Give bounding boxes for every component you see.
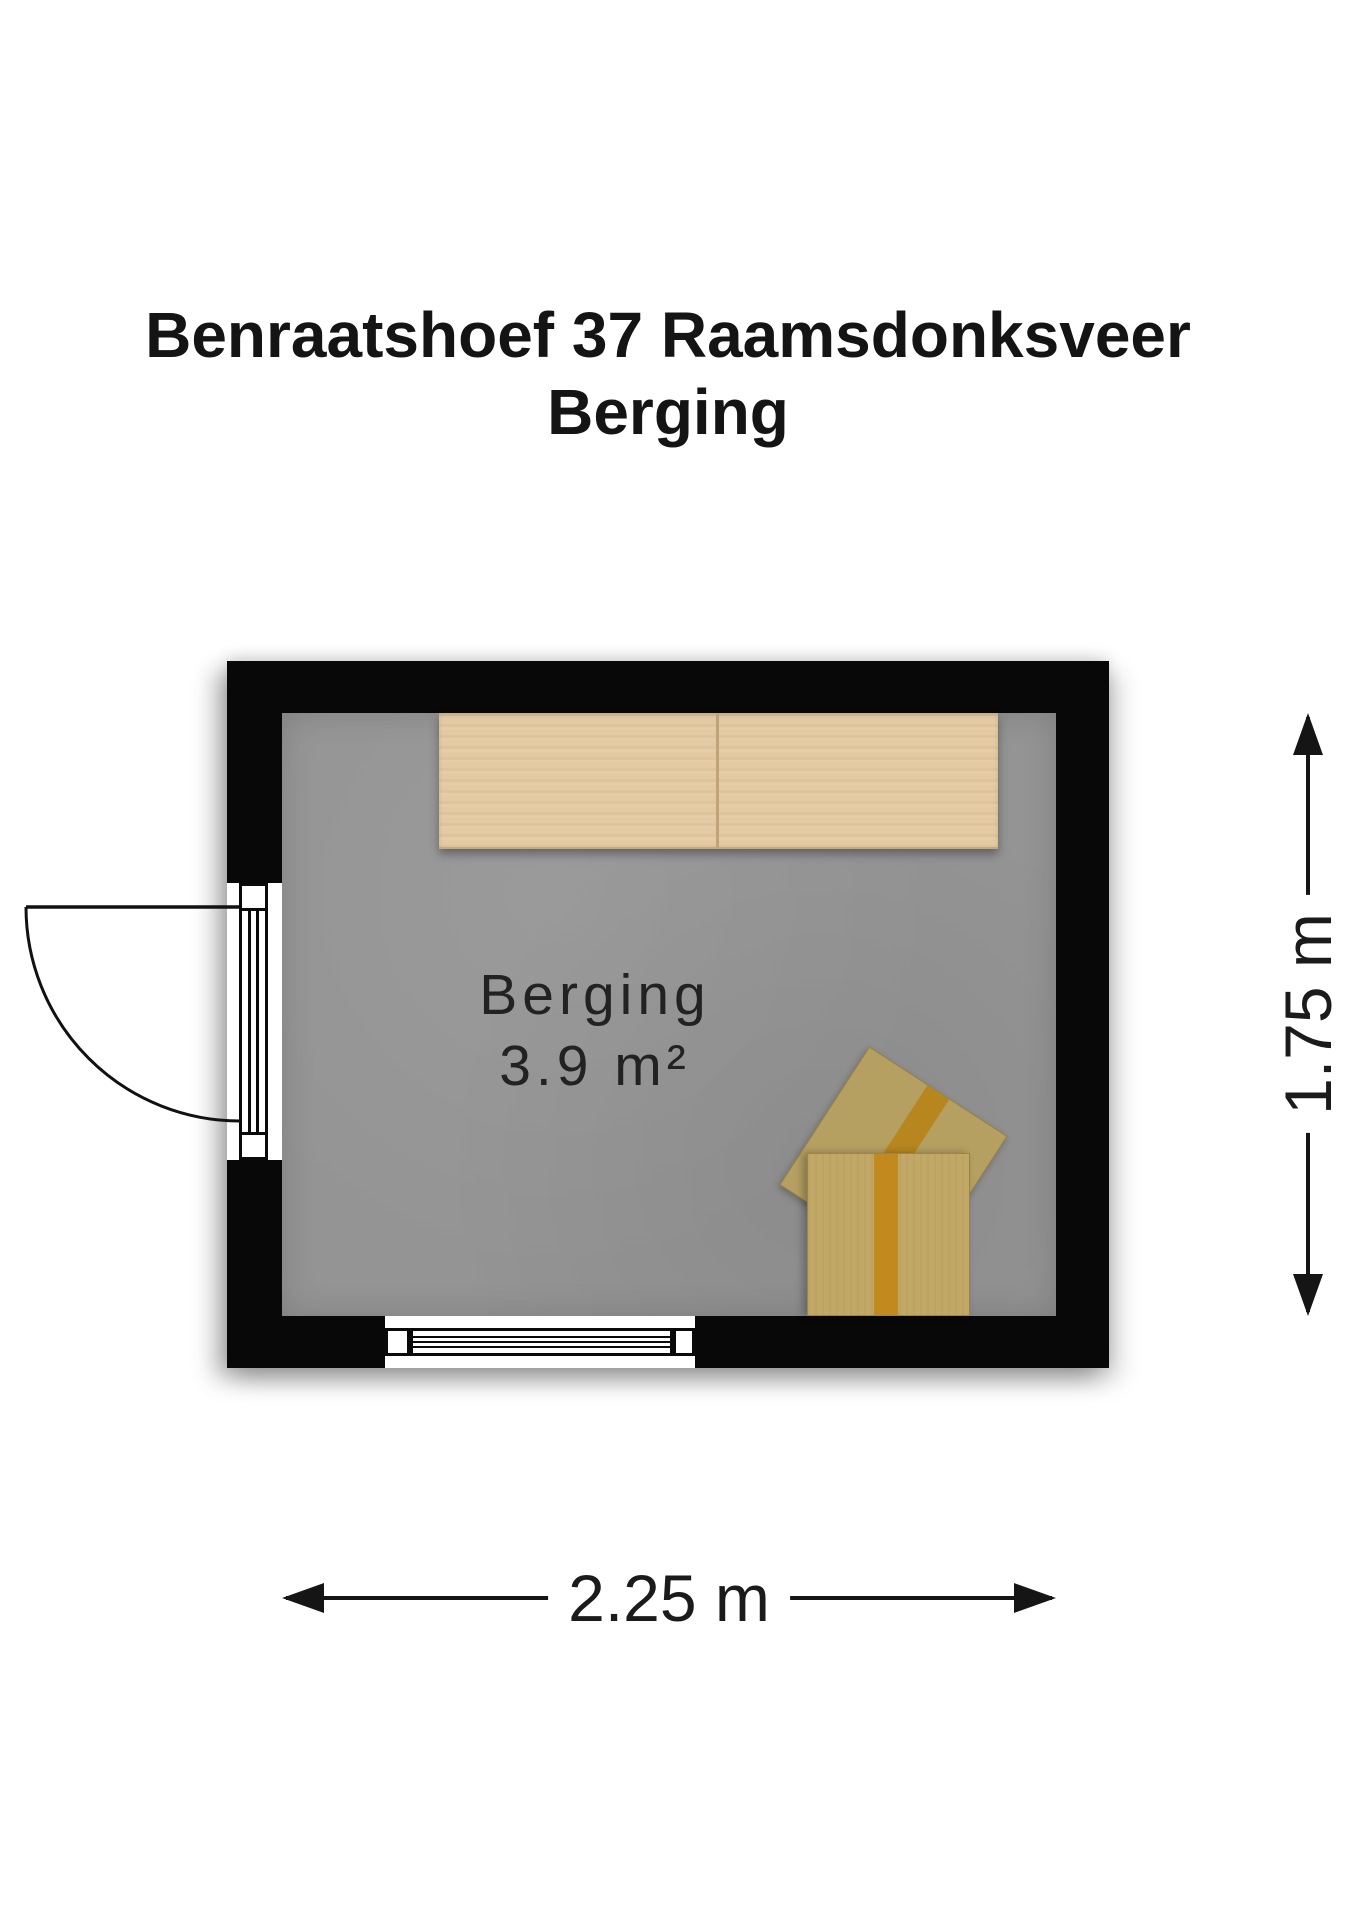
door-frame-line	[256, 911, 259, 1132]
arrow-down-icon	[1293, 1274, 1323, 1316]
arrow-left-icon	[282, 1583, 324, 1613]
arrow-right-icon	[1014, 1583, 1056, 1613]
cardboard-box-front	[807, 1153, 970, 1316]
room-area: 3.9 m²	[479, 1031, 710, 1102]
window-glass-line	[413, 1341, 670, 1343]
height-dimension: 1.75 m	[1288, 713, 1328, 1316]
arrow-up-icon	[1293, 713, 1323, 755]
door-frame-line	[248, 911, 251, 1132]
window-frame-block	[385, 1328, 410, 1356]
window-frame-block	[673, 1328, 695, 1356]
door-frame	[239, 883, 268, 1160]
window-symbol	[385, 1316, 695, 1368]
floor-plan: Berging 3.9 m²	[227, 661, 1109, 1368]
room-label: Berging 3.9 m²	[479, 960, 710, 1102]
door-frame-line	[242, 1132, 265, 1135]
shelf-divider-line	[716, 713, 719, 847]
floor-plan-page: Benraatshoef 37 Raamsdonksveer Berging B…	[0, 0, 1358, 1920]
door-swing-arc	[26, 907, 240, 1121]
wooden-shelf	[439, 713, 998, 849]
width-dimension-label: 2.25 m	[548, 1560, 790, 1636]
box-tape-stripe	[874, 1154, 898, 1315]
door-frame-line	[242, 908, 265, 911]
window-glass-line	[413, 1346, 670, 1348]
title-room-name: Berging	[145, 374, 1191, 451]
window-glass-line	[413, 1336, 670, 1338]
window-glass	[410, 1328, 673, 1356]
page-title: Benraatshoef 37 Raamsdonksveer Berging	[145, 297, 1191, 451]
door-opening	[227, 883, 282, 1160]
height-dimension-label: 1.75 m	[1270, 895, 1346, 1133]
title-address: Benraatshoef 37 Raamsdonksveer	[145, 297, 1191, 374]
room-name: Berging	[479, 960, 710, 1031]
width-dimension: 2.25 m	[282, 1578, 1056, 1618]
